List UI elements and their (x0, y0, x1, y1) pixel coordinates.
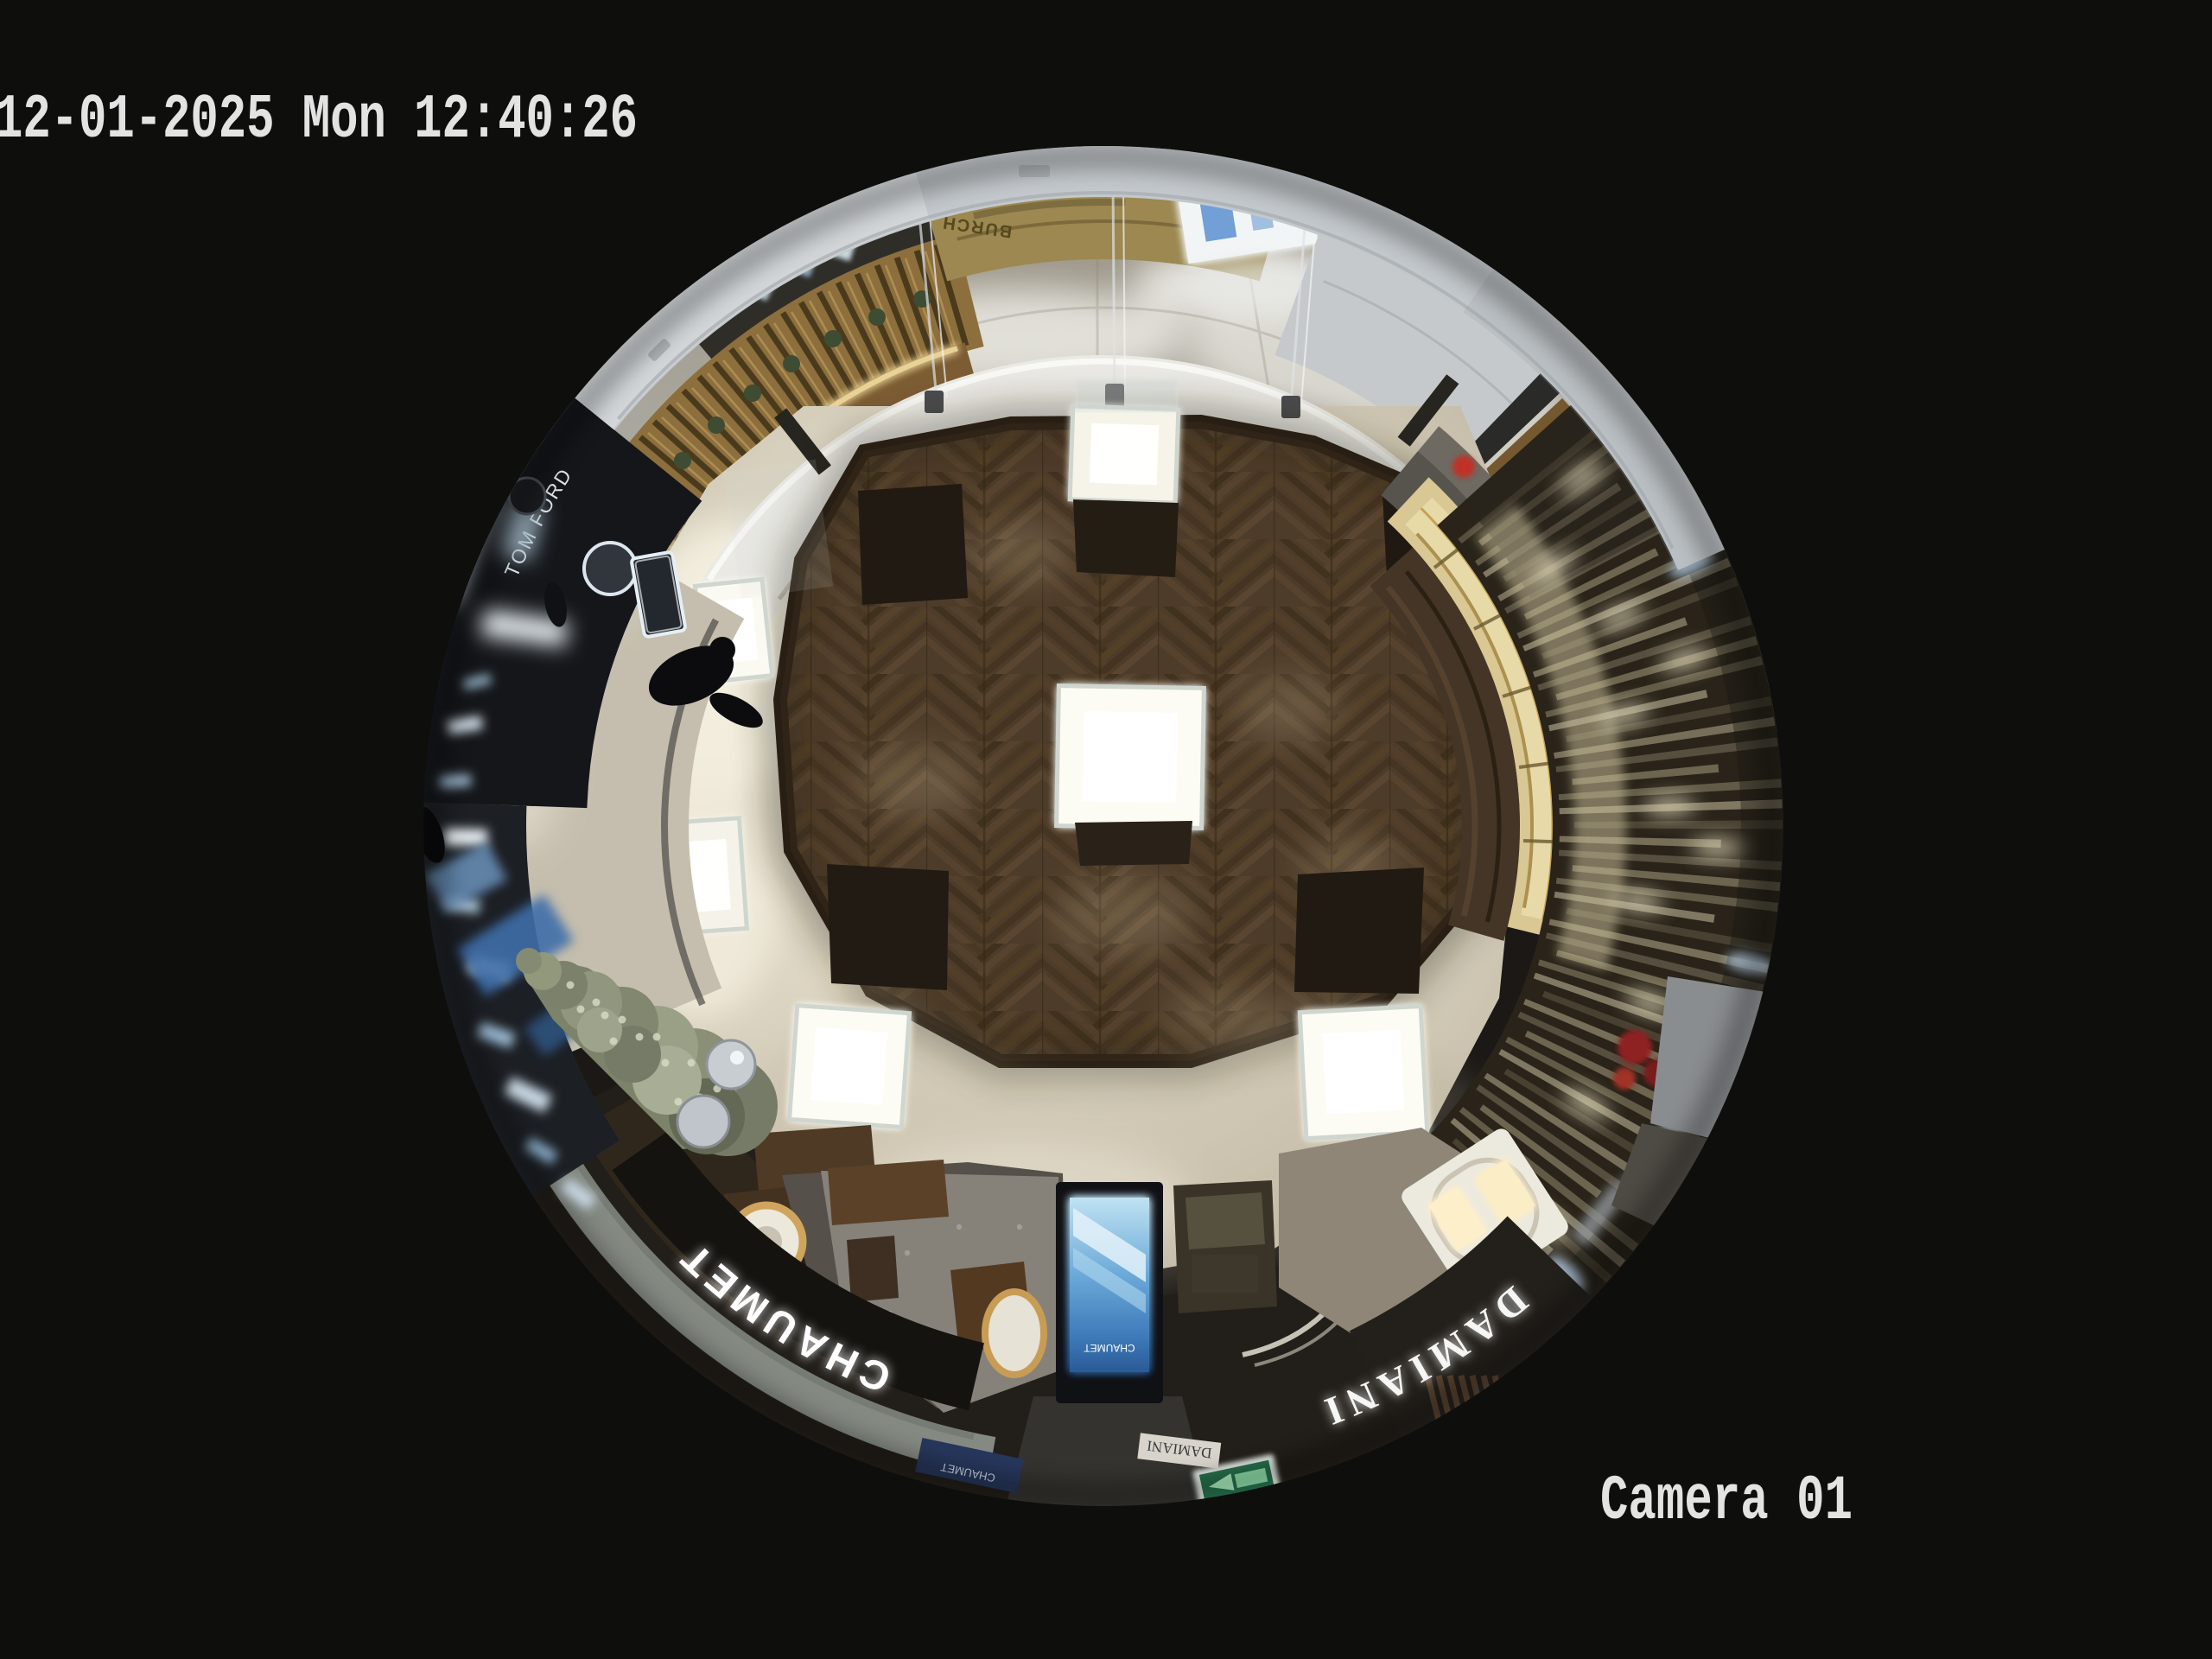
svg-text:12-01-2025 Mon 12:40:26: 12-01-2025 Mon 12:40:26 (0, 86, 638, 156)
svg-text:Camera 01: Camera 01 (1600, 1466, 1853, 1538)
svg-text:CHAUMET: CHAUMET (1084, 1342, 1135, 1354)
